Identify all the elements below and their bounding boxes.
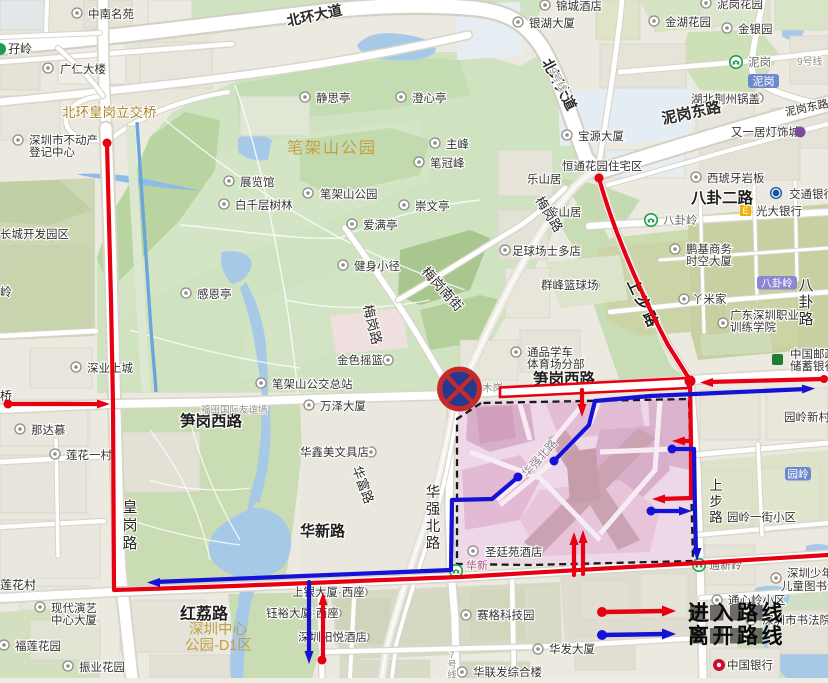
svg-text:丫米家: 丫米家 — [692, 292, 727, 306]
svg-text:时空大厦: 时空大厦 — [686, 254, 732, 268]
svg-text:爱满亭: 爱满亭 — [363, 218, 398, 232]
svg-text:八卦岭: 八卦岭 — [761, 276, 793, 289]
svg-text:公园-D1区: 公园-D1区 — [185, 638, 252, 654]
svg-text:路: 路 — [709, 510, 723, 525]
svg-text:泥岗: 泥岗 — [748, 56, 771, 69]
svg-text:线: 线 — [447, 669, 457, 678]
svg-text:体育场分部: 体育场分部 — [527, 357, 585, 371]
svg-text:那达慕: 那达慕 — [31, 423, 66, 437]
svg-text:红荔路: 红荔路 — [180, 604, 229, 623]
svg-text:华发大厦: 华发大厦 — [549, 642, 595, 656]
svg-text:八: 八 — [798, 277, 813, 294]
svg-text:上银大厦·西座: 上银大厦·西座 — [292, 585, 365, 599]
svg-text:通品学车: 通品学车 — [527, 345, 573, 359]
svg-text:北环皇岗立交桥: 北环皇岗立交桥 — [62, 104, 157, 120]
svg-text:钰裕大厦·西座: 钰裕大厦·西座 — [266, 606, 339, 620]
svg-text:E: E — [742, 206, 748, 216]
svg-text:皇: 皇 — [122, 499, 137, 516]
svg-text:莲花村: 莲花村 — [0, 577, 36, 592]
svg-text:交通银行: 交通银行 — [789, 187, 828, 201]
svg-text:笔架山公园: 笔架山公园 — [320, 187, 378, 201]
svg-text:静思亭: 静思亭 — [316, 91, 351, 105]
svg-text:健身小径: 健身小径 — [354, 259, 400, 273]
svg-text:中国邮政: 中国邮政 — [790, 347, 828, 361]
svg-text:莲花一村: 莲花一村 — [66, 448, 112, 462]
svg-text:中心大厦: 中心大厦 — [51, 613, 97, 627]
svg-text:锦城酒店: 锦城酒店 — [556, 0, 602, 13]
svg-text:福莲花园: 福莲花园 — [15, 639, 61, 653]
svg-text:卦: 卦 — [798, 294, 813, 311]
svg-text:深圳市不动产: 深圳市不动产 — [29, 133, 98, 147]
svg-text:北: 北 — [426, 518, 441, 535]
svg-text:进入路线: 进入路线 — [688, 601, 786, 625]
svg-text:足球场士多店: 足球场士多店 — [512, 244, 581, 258]
svg-text:展览馆: 展览馆 — [240, 175, 275, 189]
svg-text:感恩亭: 感恩亭 — [197, 287, 232, 301]
svg-text:登记中心: 登记中心 — [29, 145, 75, 159]
svg-text:广仁大楼: 广仁大楼 — [60, 62, 106, 76]
svg-text:泥岗: 泥岗 — [753, 75, 775, 88]
svg-text:福田国际友谊墙: 福田国际友谊墙 — [201, 404, 268, 416]
svg-text:金银园: 金银园 — [738, 22, 773, 36]
svg-text:光大银行: 光大银行 — [756, 204, 802, 218]
svg-text:赛格科技园: 赛格科技园 — [477, 608, 535, 622]
svg-text:离开路线: 离开路线 — [688, 624, 786, 648]
svg-text:儿童图书馆: 儿童图书馆 — [781, 579, 828, 593]
svg-text:华: 华 — [426, 484, 441, 501]
svg-text:深圳中心: 深圳中心 — [189, 621, 247, 638]
svg-text:9号线: 9号线 — [797, 55, 823, 68]
svg-text:笔架山公交总站: 笔架山公交总站 — [272, 377, 353, 391]
svg-text:步: 步 — [709, 494, 723, 509]
svg-text:深圳少年: 深圳少年 — [787, 566, 828, 580]
svg-text:澄心亭: 澄心亭 — [412, 91, 447, 105]
svg-text:现代演艺: 现代演艺 — [51, 601, 97, 615]
svg-text:路: 路 — [798, 311, 813, 328]
svg-text:崇文亭: 崇文亭 — [415, 199, 450, 213]
svg-text:白千层树林: 白千层树林 — [235, 198, 293, 212]
svg-text:上: 上 — [709, 478, 723, 493]
svg-text:群峰篮球场: 群峰篮球场 — [541, 278, 599, 292]
svg-text:路: 路 — [122, 535, 137, 552]
svg-text:训练学院: 训练学院 — [730, 320, 776, 334]
svg-text:笔架山公园: 笔架山公园 — [287, 139, 377, 157]
svg-text:笔冠峰: 笔冠峰 — [430, 156, 465, 170]
svg-text:泥岗花园: 泥岗花园 — [717, 0, 763, 11]
svg-text:又一居灯饰城: 又一居灯饰城 — [731, 125, 800, 139]
svg-text:八卦二路: 八卦二路 — [690, 188, 754, 207]
svg-text:孖岭: 孖岭 — [8, 42, 32, 56]
svg-text:华联发综合楼: 华联发综合楼 — [473, 665, 542, 678]
svg-text:八卦岭: 八卦岭 — [663, 213, 698, 227]
svg-text:振业花园: 振业花园 — [79, 660, 125, 674]
svg-text:华鑫美文具店: 华鑫美文具店 — [300, 445, 369, 459]
svg-text:岗: 岗 — [122, 517, 137, 534]
svg-text:万泽大厦: 万泽大厦 — [320, 399, 366, 413]
svg-text:中南名苑: 中南名苑 — [88, 7, 134, 21]
svg-text:华新路: 华新路 — [300, 522, 346, 540]
svg-text:银湖大厦: 银湖大厦 — [529, 16, 575, 30]
svg-text:强: 强 — [426, 502, 441, 518]
svg-text:岭: 岭 — [0, 285, 12, 299]
svg-text:园岭: 园岭 — [788, 467, 809, 480]
svg-text:主峰: 主峰 — [446, 138, 469, 151]
svg-text:宝源大厦: 宝源大厦 — [578, 129, 624, 143]
svg-text:中国银行: 中国银行 — [727, 658, 773, 672]
svg-text:储蓄银行: 储蓄银行 — [790, 359, 828, 373]
svg-text:金色摇篮: 金色摇篮 — [337, 353, 383, 367]
svg-text:路: 路 — [426, 535, 441, 552]
svg-text:园岭新村: 园岭新村 — [784, 410, 828, 424]
svg-text:长城开发园区: 长城开发园区 — [0, 227, 69, 241]
svg-text:鹏基商务: 鹏基商务 — [686, 242, 732, 256]
svg-text:广东深圳职业: 广东深圳职业 — [730, 308, 799, 322]
svg-text:华新: 华新 — [466, 558, 488, 572]
svg-text:金湖花园: 金湖花园 — [665, 15, 711, 29]
svg-text:恒通花园住宅区: 恒通花园住宅区 — [562, 159, 643, 173]
svg-text:圣廷苑酒店: 圣廷苑酒店 — [485, 545, 543, 559]
svg-text:西琥牙岩板: 西琥牙岩板 — [707, 171, 765, 185]
svg-text:园岭一街小区: 园岭一街小区 — [727, 510, 796, 524]
svg-text:乐山居: 乐山居 — [527, 173, 562, 186]
